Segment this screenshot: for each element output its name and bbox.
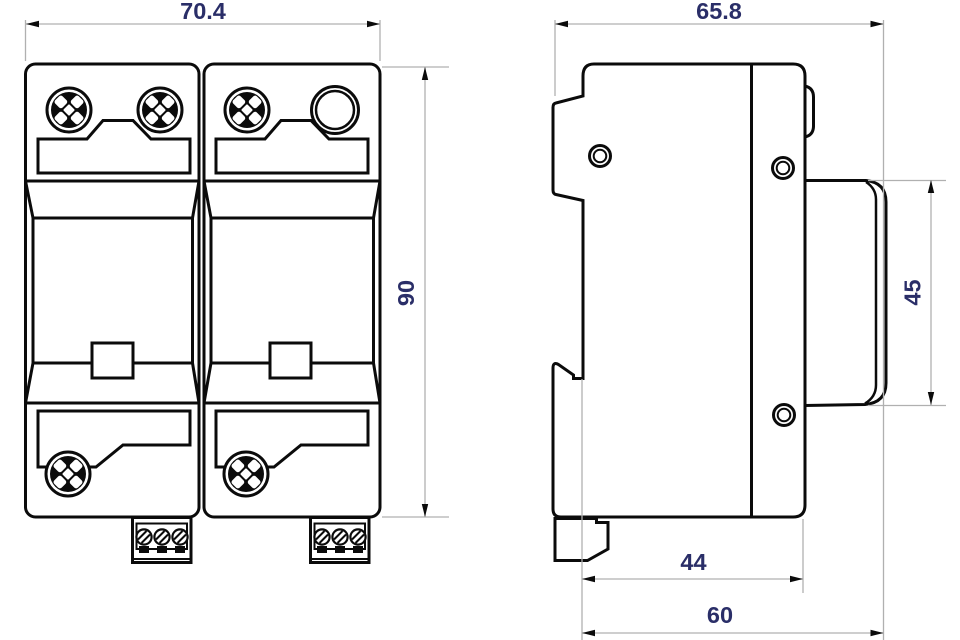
arrowhead-icon [928,180,934,193]
front-module-2 [204,64,380,563]
terminal-screw-icon [154,529,169,544]
arrowhead-icon [790,576,803,582]
mounting-hole-icon [774,405,795,426]
screw-head-icon [224,452,268,496]
dim-label-side-pod-height: 45 [900,279,926,305]
side-body-outline [553,64,805,517]
side-pod-edge-line [865,182,876,404]
front-module-1 [26,64,200,563]
arrowhead-icon [582,630,595,636]
side-module-pod [805,181,886,406]
arrowhead-icon [367,21,380,27]
module-2-housing [204,64,380,517]
module-1-terminal-block [133,518,192,563]
front-view [26,64,381,563]
screw-head-icon [47,88,91,132]
drawing-svg: 70.4 90 65.8 45 44 [0,0,960,640]
module-2-terminal-block [311,518,370,563]
screw-head-icon [138,88,182,132]
arrowhead-icon [26,21,39,27]
dim-label-front-height: 90 [393,280,419,306]
dim-label-side-depth-outer: 60 [707,602,733,628]
arrowhead-icon [871,630,884,636]
terminal-screw-icon [332,529,347,544]
arrowhead-icon [928,392,934,405]
arrowhead-icon [555,21,568,27]
dimension-side-depth-outer: 60 [582,602,884,636]
dim-label-front-width: 70.4 [180,0,226,24]
mounting-hole-icon [773,158,794,179]
terminal-screw-icon [350,529,365,544]
dimension-front-height: 90 [382,67,449,517]
terminal-screw-icon [136,529,151,544]
dimension-front-width: 70.4 [26,0,381,61]
arrowhead-icon [871,21,884,27]
dimension-side-pod-height: 45 [868,180,946,406]
module-2-latch [270,343,311,378]
dim-label-side-depth-inner: 44 [680,549,706,575]
screw-head-icon [46,452,90,496]
module-1-housing [26,64,200,517]
mounting-hole-icon [590,146,611,167]
arrowhead-icon [422,67,428,80]
arrowhead-icon [582,576,595,582]
module-1-latch [92,343,133,378]
terminal-screw-icon [314,529,329,544]
dim-label-side-total-width: 65.8 [696,0,742,24]
technical-drawing: 70.4 90 65.8 45 44 [0,0,960,640]
terminal-screw-icon [172,529,187,544]
side-view [553,64,886,561]
screw-head-icon [225,88,269,132]
arrowhead-icon [422,504,428,517]
